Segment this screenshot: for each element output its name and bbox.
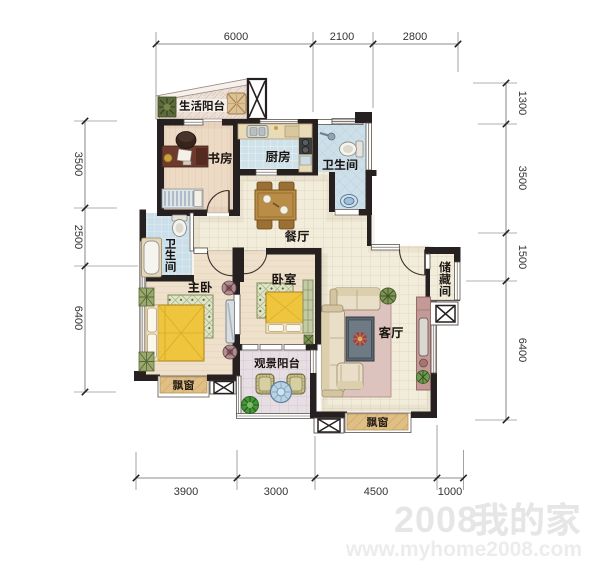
svg-text:3900: 3900: [174, 486, 198, 498]
svg-text:3500: 3500: [72, 152, 84, 176]
svg-text:3000: 3000: [264, 486, 288, 498]
svg-text:2008: 2008: [394, 499, 478, 540]
svg-text:6400: 6400: [72, 306, 84, 330]
svg-text:6000: 6000: [224, 31, 248, 43]
svg-text:www.myhome2008.com: www.myhome2008.com: [345, 538, 582, 561]
svg-text:6400: 6400: [516, 338, 528, 362]
svg-text:2800: 2800: [403, 31, 427, 43]
svg-text:1300: 1300: [516, 91, 528, 115]
svg-text:1500: 1500: [516, 245, 528, 269]
svg-text:2500: 2500: [72, 225, 84, 249]
svg-text:2100: 2100: [330, 31, 354, 43]
svg-text:3500: 3500: [516, 166, 528, 190]
svg-text:4500: 4500: [364, 486, 388, 498]
svg-text:1000: 1000: [438, 486, 462, 498]
